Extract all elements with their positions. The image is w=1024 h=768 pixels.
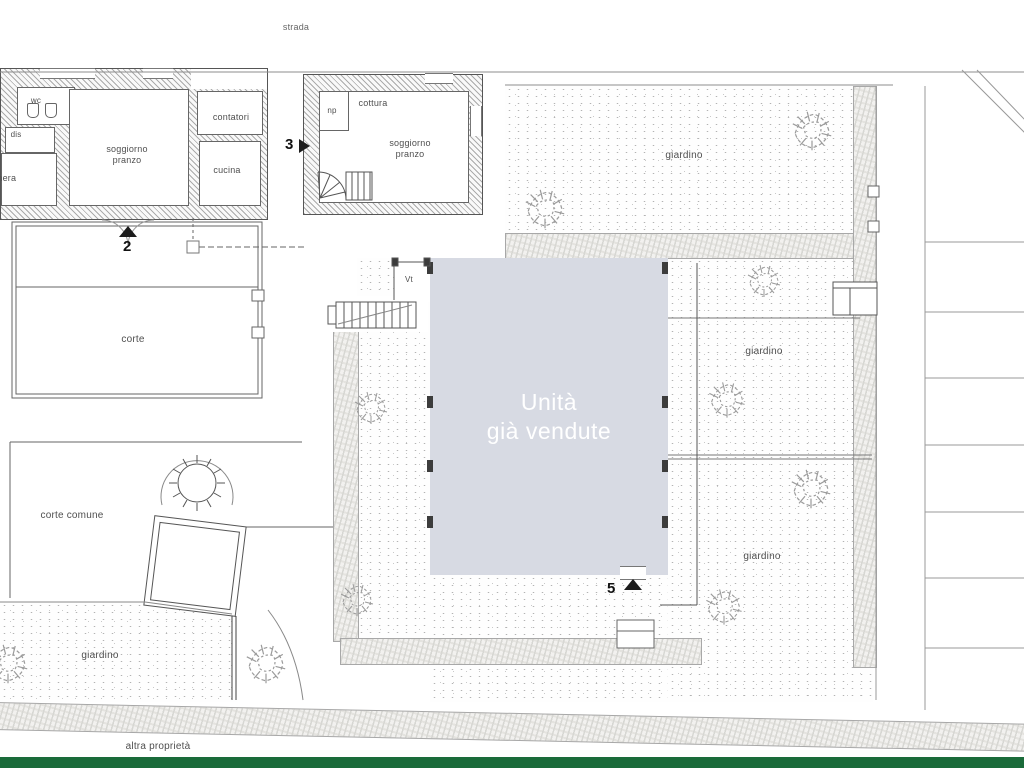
room-label-dis: dis [11, 130, 22, 140]
garden-label-1: giardino [665, 150, 702, 163]
left-building-top-inset [191, 69, 267, 89]
door-notch [620, 566, 646, 580]
window-icon [470, 106, 482, 136]
room-label-np: np [327, 106, 336, 116]
bush-icon [247, 645, 285, 683]
wall-stub [662, 516, 668, 528]
room-label-contatori: contatori [213, 112, 249, 123]
window-icon [425, 73, 453, 84]
garden-label-4: giardino [81, 650, 118, 663]
wall-stub [427, 460, 433, 472]
corte-label: corte [121, 334, 144, 347]
sold-units-block: Unità già vendute [430, 258, 668, 575]
window-icon [143, 68, 173, 79]
hedge-strip-top [505, 233, 875, 259]
corte-comune-label: corte comune [41, 510, 104, 523]
corte-outline [12, 218, 305, 398]
wall-stub [427, 516, 433, 528]
wall-stub [427, 396, 433, 408]
hedge-strip-left [333, 330, 359, 642]
road-curve-lines [962, 70, 1024, 134]
room-label-cottura: cottura [359, 98, 388, 109]
parking-lines [925, 70, 1024, 710]
room-label-camera: camera [0, 173, 16, 184]
other-property-label: altra proprietà [126, 741, 191, 754]
room-label-cucina: cucina [213, 165, 240, 176]
vestibule-label: Vt [405, 275, 413, 285]
site-plan: Unità già vendute [0, 0, 1024, 768]
unit-3-arrow-icon [299, 139, 310, 153]
wall-stub [662, 262, 668, 274]
street-label: strada [283, 22, 309, 33]
wall-stub [427, 262, 433, 274]
room-label-soggiorno-left: soggiorno pranzo [106, 144, 147, 167]
unit-5-arrow-icon [624, 579, 642, 590]
garden-label-2: giardino [745, 346, 782, 359]
stair-area [328, 296, 428, 332]
unit-5-marker: 5 [607, 580, 615, 597]
garden-area-right [668, 258, 873, 702]
well-icon [144, 455, 246, 616]
hedge-strip-bottom [340, 638, 702, 665]
window-icon [40, 68, 95, 79]
wall-stub [662, 460, 668, 472]
toilet-icon [45, 103, 57, 118]
unit-2-arrow-icon [119, 226, 137, 237]
sold-units-label: Unità già vendute [487, 388, 611, 446]
garden-label-3: giardino [743, 551, 780, 564]
green-boundary-bar [0, 757, 1024, 768]
unit-2-marker: 2 [123, 238, 131, 255]
wall-stub [662, 396, 668, 408]
unit-3-marker: 3 [285, 136, 293, 153]
room-label-soggiorno-middle: soggiorno pranzo [389, 138, 430, 161]
room-label-wc: wc [31, 96, 41, 106]
hedge-strip-right-fence [853, 86, 877, 668]
